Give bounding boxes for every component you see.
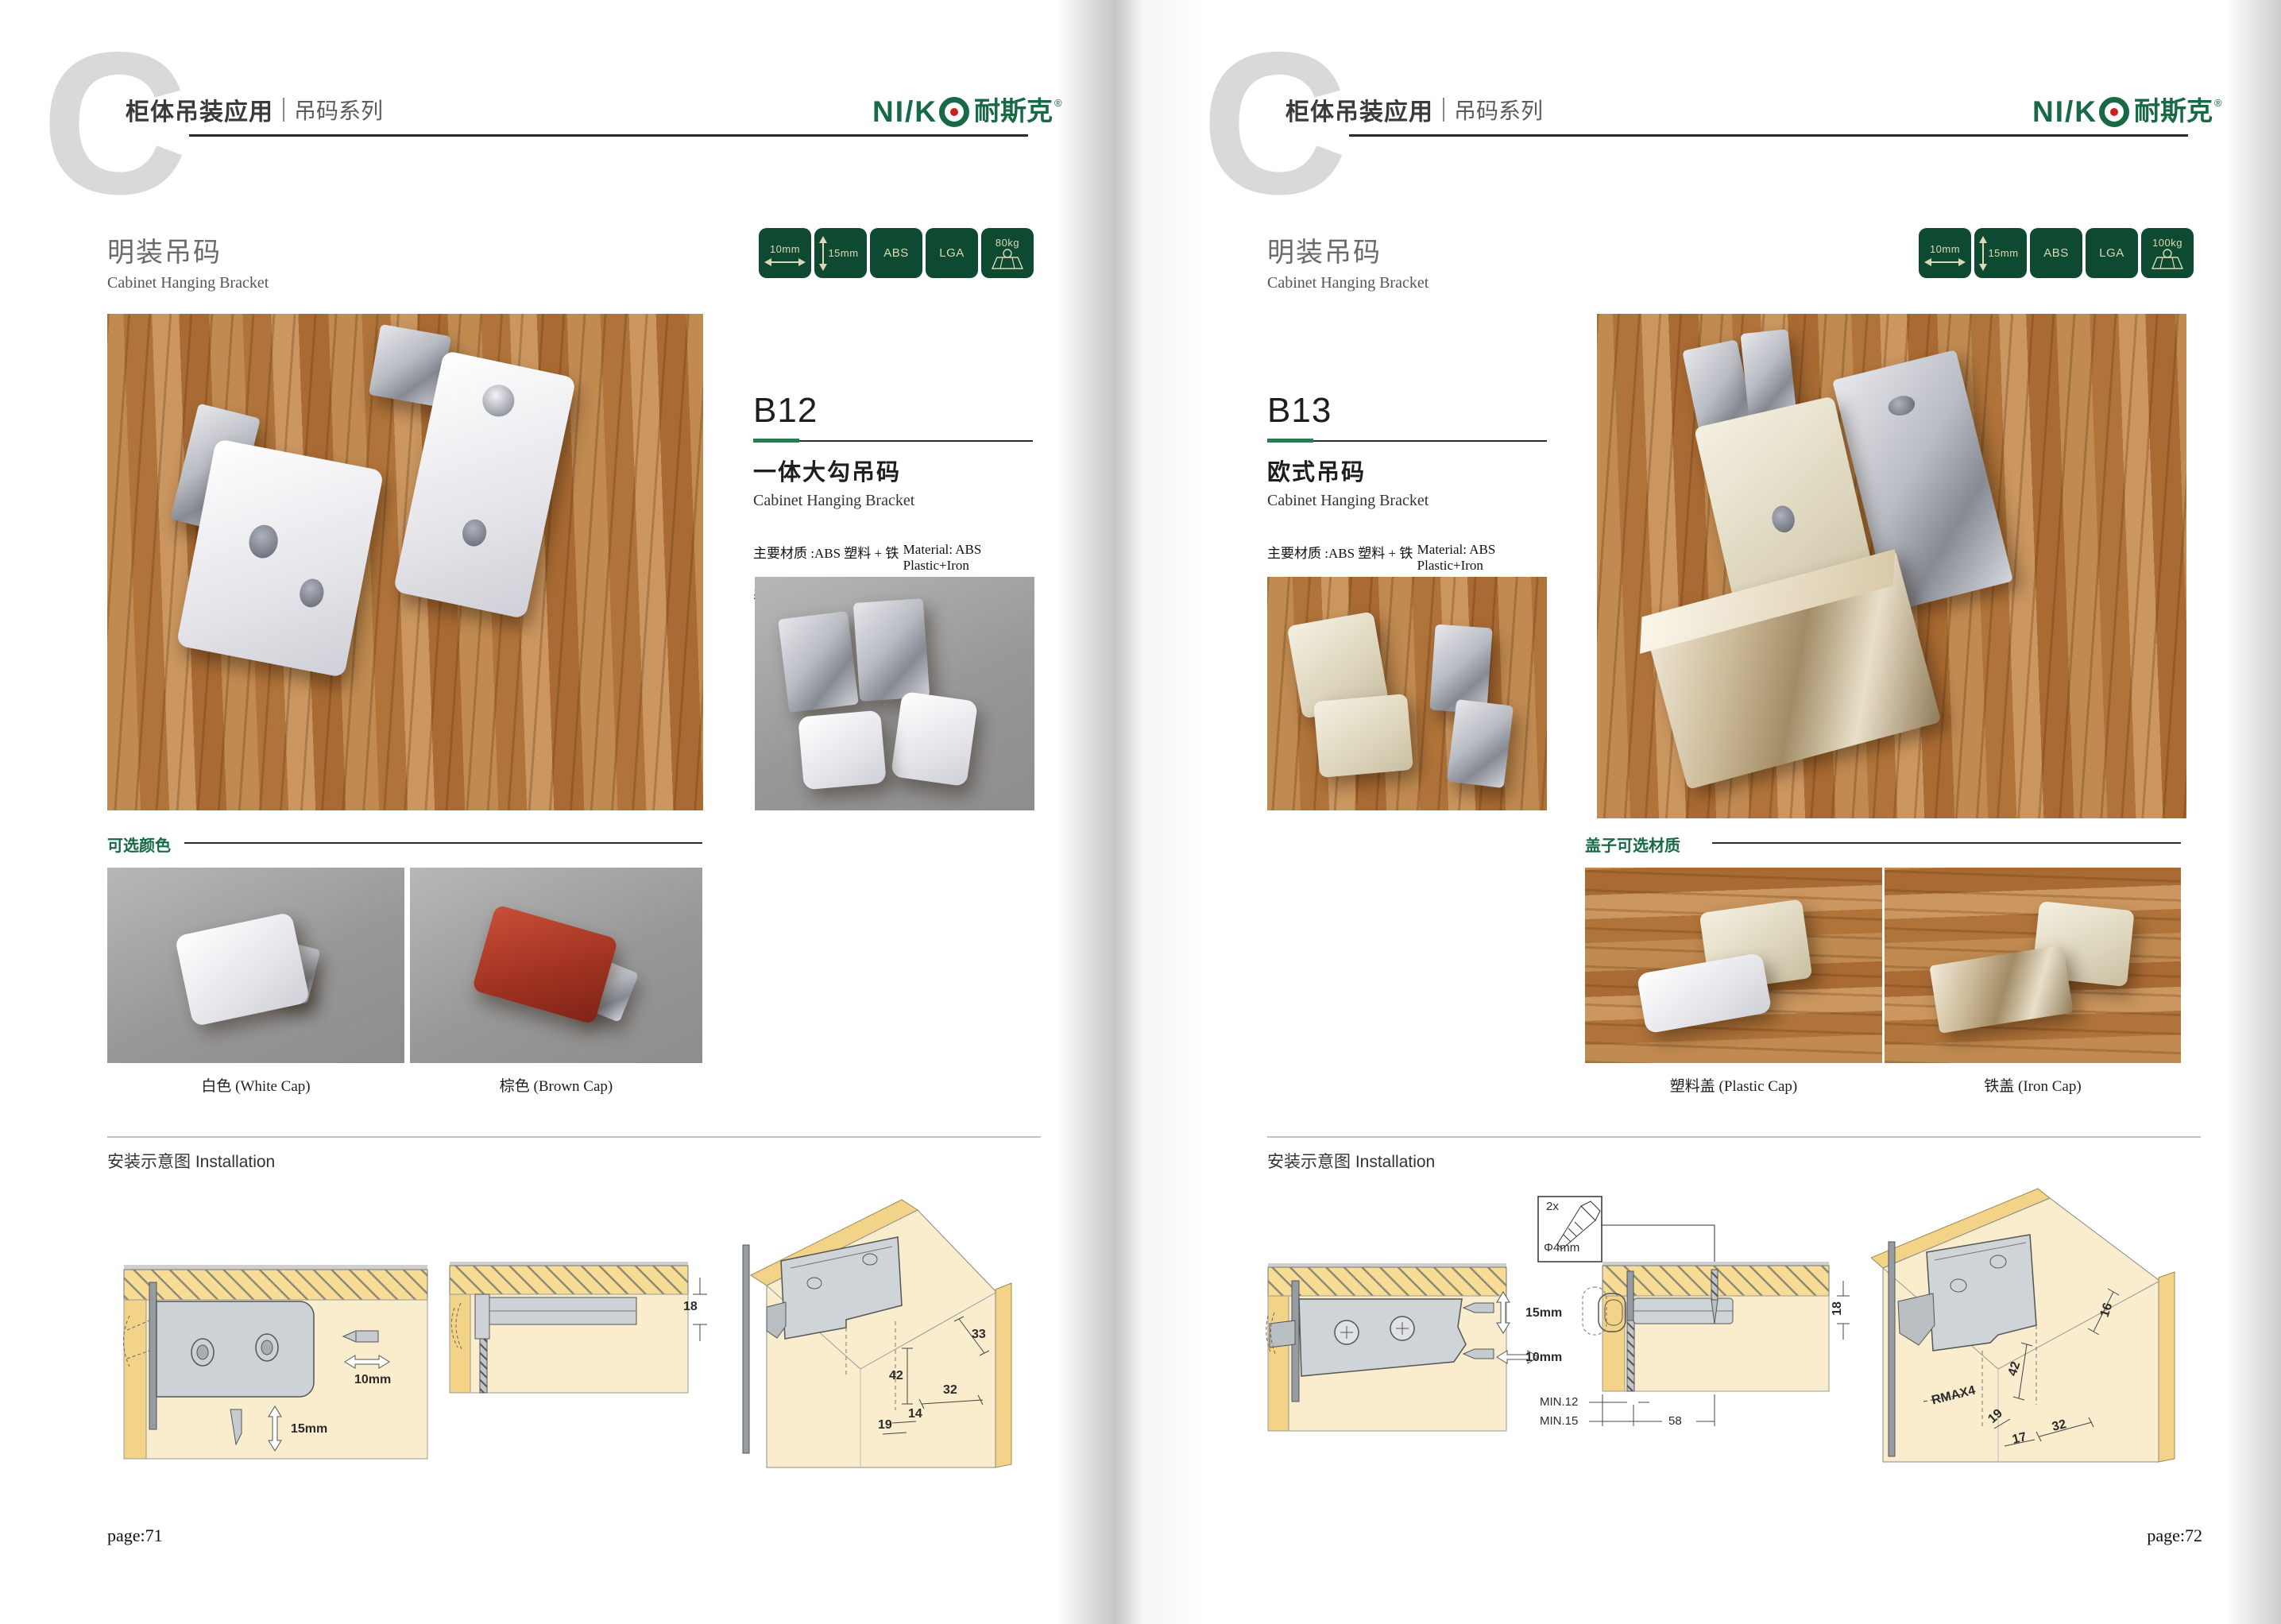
product-photo-main	[107, 314, 703, 810]
product-photo-parts	[1267, 577, 1547, 810]
dim-label: 14	[908, 1407, 922, 1421]
badge-label: ABS	[883, 246, 909, 260]
install-diagram-perspective: 16 42 RMAX4 19 17 32	[1871, 1166, 2233, 1512]
arrow-vertical-icon	[822, 238, 824, 269]
options-rule	[1712, 842, 2181, 844]
header-rule	[1349, 134, 2188, 137]
badge-label: LGA	[2099, 246, 2124, 260]
install-diagram-side: 18	[445, 1254, 711, 1405]
registered-mark: ®	[1054, 97, 1062, 109]
dim-label: 15mm	[291, 1422, 327, 1436]
badge-height: 15mm	[814, 228, 867, 278]
badge-lga: LGA	[2086, 228, 2138, 278]
screw-head	[480, 382, 517, 420]
spec-material-cn: 主要材质 :ABS 塑料 + 铁	[1267, 542, 1417, 574]
arrow-vertical-icon	[1982, 238, 1984, 269]
screw-count-label: 2x	[1546, 1200, 1559, 1213]
options-rule	[184, 842, 702, 844]
arrow-horizontal-icon	[766, 261, 804, 263]
header-subtitle: 吊码系列	[1454, 94, 1543, 126]
product-code: B12	[753, 391, 1039, 431]
arrow-horizontal-icon	[1926, 261, 1964, 263]
bracket-body-cream	[1313, 694, 1413, 778]
spec-material-en: Material: ABS Plastic+Iron	[1417, 542, 1553, 574]
header-title: 柜体吊装应用	[126, 92, 273, 127]
screw-diameter-label: Φ4mm	[1544, 1241, 1579, 1255]
install-diagram-front: 10mm 15mm	[119, 1254, 437, 1470]
install-diagram-perspective: 33 42 32 14 19	[719, 1172, 1069, 1514]
option-swatch-plastic	[1585, 868, 1882, 1063]
product-name-en: Cabinet Hanging Bracket	[753, 492, 1039, 510]
spec-material-cn: 主要材质 :ABS 塑料 + 铁	[753, 542, 903, 574]
iron-cap	[1929, 945, 2073, 1034]
swatch-caption: 白色 (White Cap)	[107, 1074, 404, 1096]
badge-label: LGA	[939, 246, 965, 260]
installation-divider	[107, 1136, 1041, 1138]
badge-load: 80kg	[981, 228, 1034, 278]
bracket-hole	[1769, 504, 1797, 535]
dim-label: 42	[889, 1369, 903, 1383]
badge-label: 10mm	[770, 243, 800, 255]
spec-badges: 10mm 15mm ABS LGA 100kg	[1919, 228, 2194, 278]
load-capacity-icon	[2151, 249, 2184, 269]
plate-slot	[1886, 393, 1917, 419]
dim-label: 18	[1831, 1301, 1845, 1316]
badge-label: 15mm	[1988, 247, 2018, 259]
product-name-cn: 欧式吊码	[1267, 454, 1553, 487]
option-swatch-brown	[410, 868, 702, 1063]
install-diagram-front: 15mm 10mm	[1263, 1257, 1569, 1452]
page-edge-shadow	[2225, 0, 2281, 1624]
badge-label: 15mm	[828, 247, 858, 259]
product-photo-main	[1597, 314, 2186, 818]
product-rule	[753, 439, 1033, 443]
install-diagram-side: 2x Φ4mm 18 MIN.12 MIN.15 58	[1533, 1192, 1875, 1438]
product-code: B13	[1267, 391, 1553, 431]
page-number: page:72	[2107, 1525, 2202, 1546]
badge-material: ABS	[2030, 228, 2082, 278]
swatch-caption: 棕色 (Brown Cap)	[410, 1074, 702, 1096]
page-number: page:71	[107, 1525, 163, 1546]
spec-material-en: Material: ABS Plastic+Iron	[903, 542, 1039, 574]
section-title-en: Cabinet Hanging Bracket	[1267, 274, 1429, 292]
bracket-hole	[246, 523, 280, 561]
installation-label: 安装示意图 Installation	[107, 1149, 275, 1173]
header-divider	[1443, 98, 1444, 122]
section-title-cn: 明装吊码	[1267, 230, 1429, 269]
metal-plate	[778, 611, 859, 713]
page-fold-shadow	[1057, 0, 1204, 1624]
options-label: 可选颜色	[107, 833, 171, 856]
dim-label: 58	[1668, 1414, 1682, 1428]
diagram-drawing	[719, 1172, 1069, 1514]
brand-logo-ring-icon	[2099, 97, 2129, 127]
diagram-drawing	[1263, 1257, 1569, 1452]
diagram-drawing	[1871, 1166, 2233, 1512]
option-swatch-iron	[1885, 868, 2181, 1063]
header-title: 柜体吊装应用	[1285, 92, 1433, 127]
product-name-cn: 一体大勾吊码	[753, 454, 1039, 487]
brand-logo: NI/K 耐斯克 ®	[2032, 97, 2222, 127]
section-title: 明装吊码 Cabinet Hanging Bracket	[1267, 230, 1429, 292]
brand-logo-ring-icon	[939, 97, 969, 127]
page-header: 柜体吊装应用 吊码系列	[126, 92, 383, 127]
badge-label: ABS	[2043, 246, 2069, 260]
swatch-caption: 铁盖 (Iron Cap)	[1885, 1074, 2181, 1096]
diagram-drawing	[119, 1254, 437, 1470]
bracket-hole	[297, 577, 326, 609]
dim-label: 10mm	[354, 1373, 391, 1387]
bracket-body-white	[891, 691, 978, 787]
diagram-drawing	[1533, 1192, 1875, 1438]
bracket-body-white	[175, 912, 311, 1027]
section-title-en: Cabinet Hanging Bracket	[107, 274, 269, 292]
dim-label: MIN.12	[1540, 1395, 1578, 1409]
options-label: 盖子可选材质	[1585, 833, 1680, 856]
bracket-body-brown	[472, 904, 619, 1025]
header-rule	[189, 134, 1028, 137]
dim-label: 33	[972, 1328, 986, 1342]
badge-load: 100kg	[2141, 228, 2194, 278]
badge-label: 10mm	[1930, 243, 1960, 255]
swatch-caption: 塑料盖 (Plastic Cap)	[1585, 1074, 1882, 1096]
brand-logo-cn: 耐斯克	[974, 97, 1053, 126]
badge-height: 15mm	[1974, 228, 2027, 278]
badge-lga: LGA	[926, 228, 978, 278]
bracket-body-white	[798, 710, 887, 791]
product-name-en: Cabinet Hanging Bracket	[1267, 492, 1553, 510]
badge-label: 100kg	[2152, 237, 2182, 249]
badge-label: 80kg	[996, 237, 1019, 249]
installation-label: 安装示意图 Installation	[1267, 1149, 1435, 1173]
diagram-drawing	[445, 1254, 711, 1405]
dim-label: 19	[878, 1418, 892, 1433]
installation-divider	[1267, 1136, 2201, 1138]
product-rule	[1267, 439, 1547, 443]
badge-width: 10mm	[759, 228, 811, 278]
dim-label: 18	[683, 1300, 698, 1314]
bracket-hole	[460, 517, 489, 548]
header-divider	[283, 98, 284, 122]
brand-logo: NI/K 耐斯克 ®	[872, 97, 1062, 127]
plastic-cap	[1637, 953, 1773, 1034]
load-capacity-icon	[991, 249, 1024, 269]
brand-logo-latin: NI/K	[2032, 97, 2097, 126]
option-swatch-white	[107, 868, 404, 1063]
catalog-spread: { "left": { "watermark": "C", "header_ti…	[0, 0, 2281, 1624]
nickel-cap	[1642, 549, 1942, 790]
product-photo-parts	[755, 577, 1034, 810]
brand-logo-cn: 耐斯克	[2134, 97, 2213, 126]
header-subtitle: 吊码系列	[294, 94, 383, 126]
section-title-cn: 明装吊码	[107, 230, 269, 269]
metal-plate	[853, 598, 930, 702]
page-header: 柜体吊装应用 吊码系列	[1285, 92, 1543, 127]
section-title: 明装吊码 Cabinet Hanging Bracket	[107, 230, 269, 292]
spec-badges: 10mm 15mm ABS LGA 80kg	[759, 228, 1034, 278]
registered-mark: ®	[2214, 97, 2222, 109]
brand-logo-latin: NI/K	[872, 97, 938, 126]
metal-plate	[1447, 699, 1514, 788]
dim-label: 32	[943, 1383, 957, 1398]
badge-material: ABS	[870, 228, 922, 278]
badge-width: 10mm	[1919, 228, 1971, 278]
dim-label: MIN.15	[1540, 1414, 1578, 1428]
